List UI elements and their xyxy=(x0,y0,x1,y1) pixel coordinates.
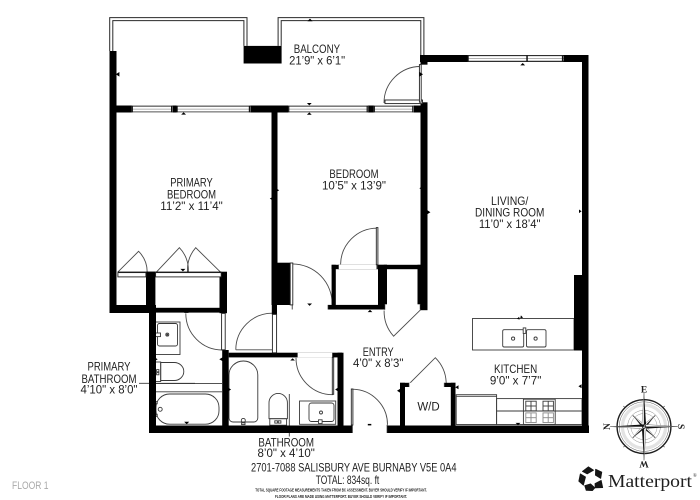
svg-text:9’0" x 7’7": 9’0" x 7’7" xyxy=(490,375,542,388)
svg-text:FLOOR PLANS ARE MADE USING MAT: FLOOR PLANS ARE MADE USING MATTERPORT. B… xyxy=(275,494,407,499)
svg-text:®: ® xyxy=(693,473,697,479)
svg-text:Matterport: Matterport xyxy=(608,471,692,491)
svg-text:PRIMARY: PRIMARY xyxy=(88,361,131,374)
svg-text:4’10" x 8’0": 4’10" x 8’0" xyxy=(81,384,138,397)
svg-text:4’0" x 8’3": 4’0" x 8’3" xyxy=(353,357,404,370)
svg-text:8’0" x 4’10": 8’0" x 4’10" xyxy=(258,447,315,460)
svg-text:W/D: W/D xyxy=(417,400,439,414)
svg-text:2701-7088 SALISBURY AVE BURNAB: 2701-7088 SALISBURY AVE BURNABY V5E 0A4 xyxy=(251,461,457,475)
svg-text:TOTAL SQUARE FOOTAGE MEASUREME: TOTAL SQUARE FOOTAGE MEASUREMENTS TAKEN … xyxy=(255,488,427,493)
svg-text:TOTAL: 834sq. ft: TOTAL: 834sq. ft xyxy=(316,474,380,487)
svg-text:11’2" x 11’4": 11’2" x 11’4" xyxy=(160,200,223,213)
svg-text:PRIMARY: PRIMARY xyxy=(170,176,213,189)
svg-text:W: W xyxy=(639,458,649,468)
svg-text:10’5" x 13’9": 10’5" x 13’9" xyxy=(322,179,386,192)
svg-text:11’0" x 18’4": 11’0" x 18’4" xyxy=(479,218,541,231)
svg-text:FLOOR 1: FLOOR 1 xyxy=(12,480,49,492)
svg-text:21’9" x 6’1": 21’9" x 6’1" xyxy=(289,55,345,68)
svg-text:N: N xyxy=(603,423,613,430)
svg-text:E: E xyxy=(641,385,647,395)
svg-text:S: S xyxy=(675,424,685,429)
